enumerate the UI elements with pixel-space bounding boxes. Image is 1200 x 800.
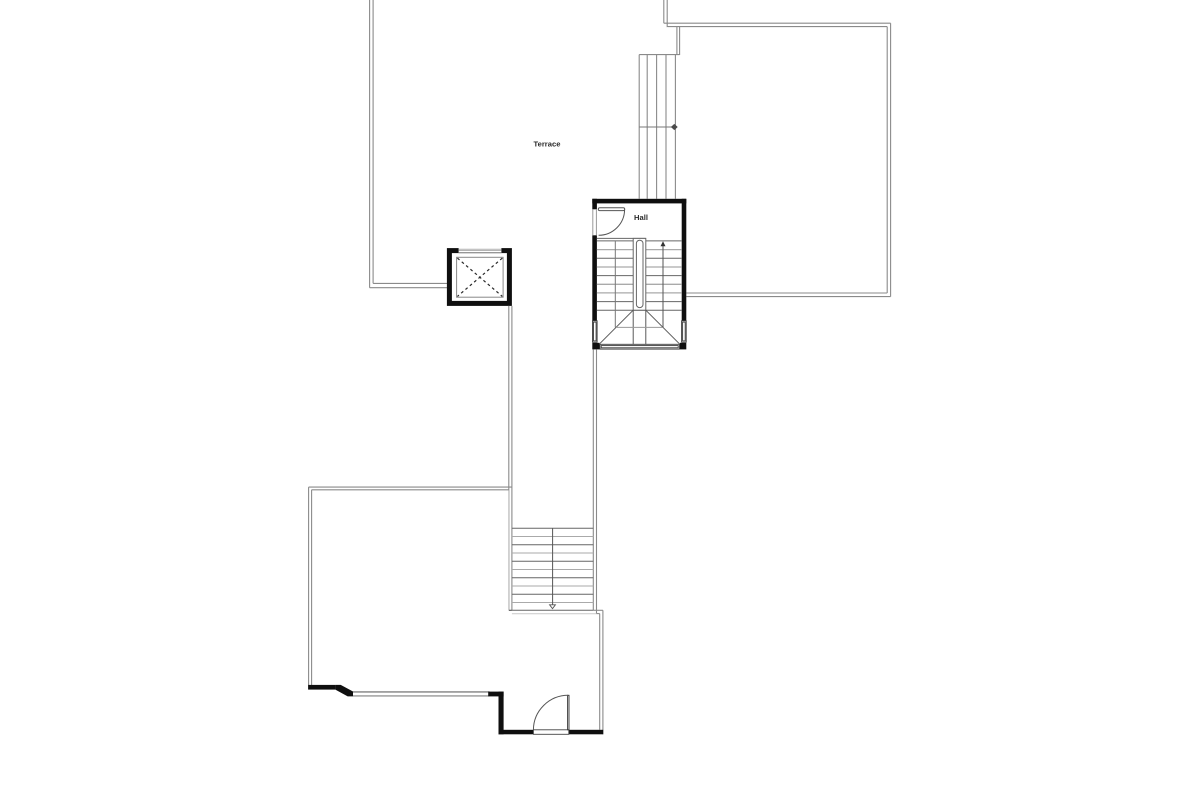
svg-text:Hall: Hall [634,213,648,222]
svg-text:Terrace: Terrace [534,140,561,149]
